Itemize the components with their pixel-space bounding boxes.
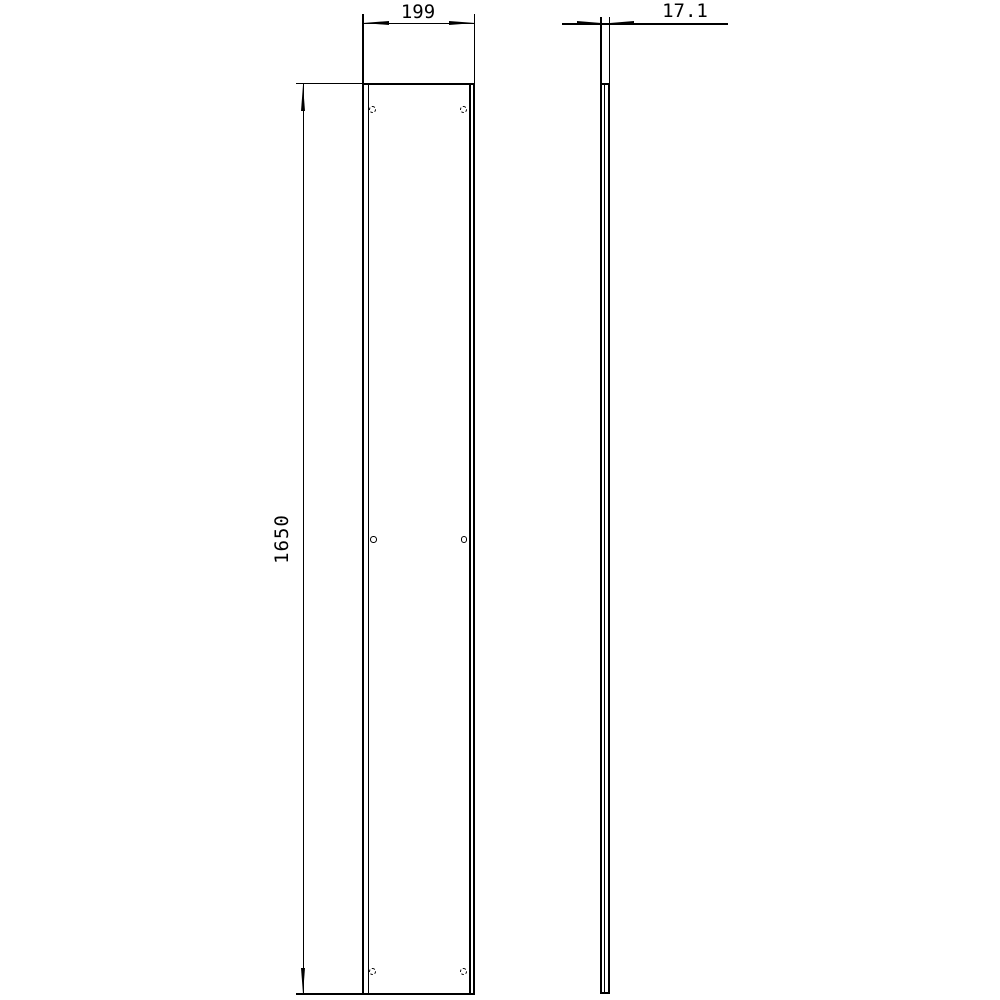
screw-hole-bottom-right (460, 968, 467, 975)
screw-hole-top-right (460, 106, 467, 113)
dim-thickness-arrowhead-left-icon (577, 21, 601, 25)
dim-thickness-arrowhead-right-icon (610, 21, 634, 25)
dim-width-label: 199 (382, 3, 454, 22)
front-view-outline (362, 83, 475, 995)
side-view-outline (600, 83, 610, 994)
screw-hole-middle-left (370, 536, 377, 543)
dim-height-label: 1650 (273, 498, 293, 580)
front-view-flange-line-left (368, 85, 370, 993)
dim-height-line (303, 84, 304, 994)
dim-thickness-label: 17.1 (649, 2, 721, 21)
front-view-flange-line-right (469, 85, 471, 993)
screw-hole-middle-right (461, 536, 468, 543)
side-view-face-line (604, 85, 605, 992)
dim-thickness-extension-line-right (609, 17, 610, 83)
dim-thickness-extension-line-left (600, 17, 601, 83)
dim-height-arrowhead-bottom-icon (301, 968, 305, 994)
dim-height-extension-line-bottom (296, 993, 363, 994)
dim-height-extension-line-top (296, 83, 363, 84)
screw-hole-bottom-left (369, 968, 376, 975)
dim-height-arrowhead-top-icon (301, 85, 305, 111)
screw-hole-top-left (369, 106, 376, 113)
drawing-canvas: 199 1650 17.1 (0, 0, 1000, 1000)
